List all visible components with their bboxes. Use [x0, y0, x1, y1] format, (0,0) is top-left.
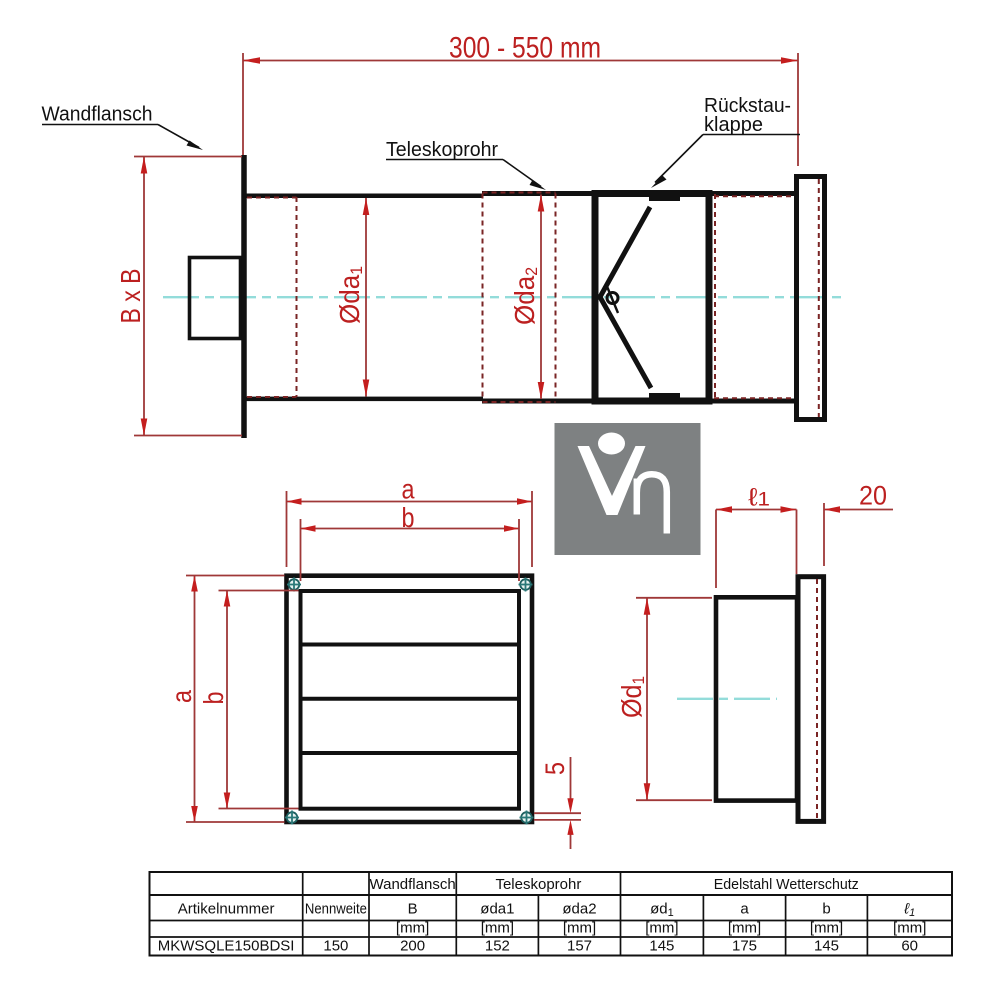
svg-text:150: 150 [323, 938, 348, 955]
svg-text:152: 152 [485, 938, 510, 955]
svg-text:[mm]: [mm] [563, 920, 596, 937]
svg-text:[mm]: [mm] [810, 920, 843, 937]
svg-text:b: b [198, 692, 229, 705]
svg-text:a: a [740, 901, 749, 918]
svg-text:145: 145 [814, 938, 839, 955]
svg-text:Nennweite: Nennweite [305, 901, 367, 918]
svg-text:Teleskoprohr: Teleskoprohr [386, 139, 498, 161]
svg-text:øda1: øda1 [480, 901, 514, 918]
svg-text:B: B [408, 901, 418, 918]
svg-text:Edelstahl Wetterschutz: Edelstahl Wetterschutz [714, 876, 859, 893]
svg-text:60: 60 [901, 938, 918, 955]
svg-text:Artikelnummer: Artikelnummer [178, 901, 275, 918]
svg-text:a: a [166, 690, 197, 703]
svg-text:MKWSQLE150BDSI: MKWSQLE150BDSI [158, 938, 295, 955]
svg-text:Teleskoprohr: Teleskoprohr [495, 876, 581, 893]
svg-text:øda2: øda2 [562, 901, 596, 918]
svg-text:175: 175 [732, 938, 757, 955]
svg-text:[mm]: [mm] [728, 920, 761, 937]
svg-text:200: 200 [400, 938, 425, 955]
svg-text:a: a [402, 474, 415, 505]
svg-text:klappe: klappe [704, 114, 763, 136]
svg-text:[mm]: [mm] [893, 920, 926, 937]
svg-text:5: 5 [540, 762, 570, 775]
svg-text:b: b [402, 502, 415, 533]
svg-text:b: b [822, 901, 830, 918]
svg-text:[mm]: [mm] [481, 920, 514, 937]
svg-text:[mm]: [mm] [645, 920, 678, 937]
svg-text:145: 145 [649, 938, 674, 955]
svg-text:300 - 550 mm: 300 - 550 mm [449, 32, 601, 65]
svg-text:20: 20 [859, 481, 887, 511]
svg-text:[mm]: [mm] [396, 920, 429, 937]
svg-text:157: 157 [567, 938, 592, 955]
svg-text:Wandflansch: Wandflansch [42, 104, 153, 126]
svg-text:B x B: B x B [115, 269, 146, 324]
svg-text:Wandflansch: Wandflansch [370, 876, 456, 893]
